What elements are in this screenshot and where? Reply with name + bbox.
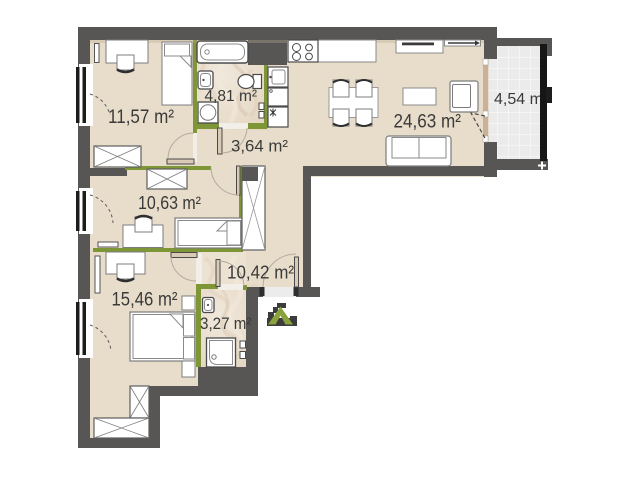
svg-text:24,63 m²: 24,63 m² <box>394 112 462 133</box>
svg-text:3,27 m²: 3,27 m² <box>200 314 252 333</box>
svg-text:11,57 m²: 11,57 m² <box>108 107 174 128</box>
svg-text:4,81 m²: 4,81 m² <box>205 88 258 105</box>
svg-text:4,54 m: 4,54 m <box>494 91 543 108</box>
svg-text:15,46 m²: 15,46 m² <box>112 290 178 311</box>
svg-text:10,42 m²: 10,42 m² <box>227 262 294 283</box>
svg-text:10,63 m²: 10,63 m² <box>138 193 201 213</box>
svg-text:3,64 m²: 3,64 m² <box>231 138 289 156</box>
